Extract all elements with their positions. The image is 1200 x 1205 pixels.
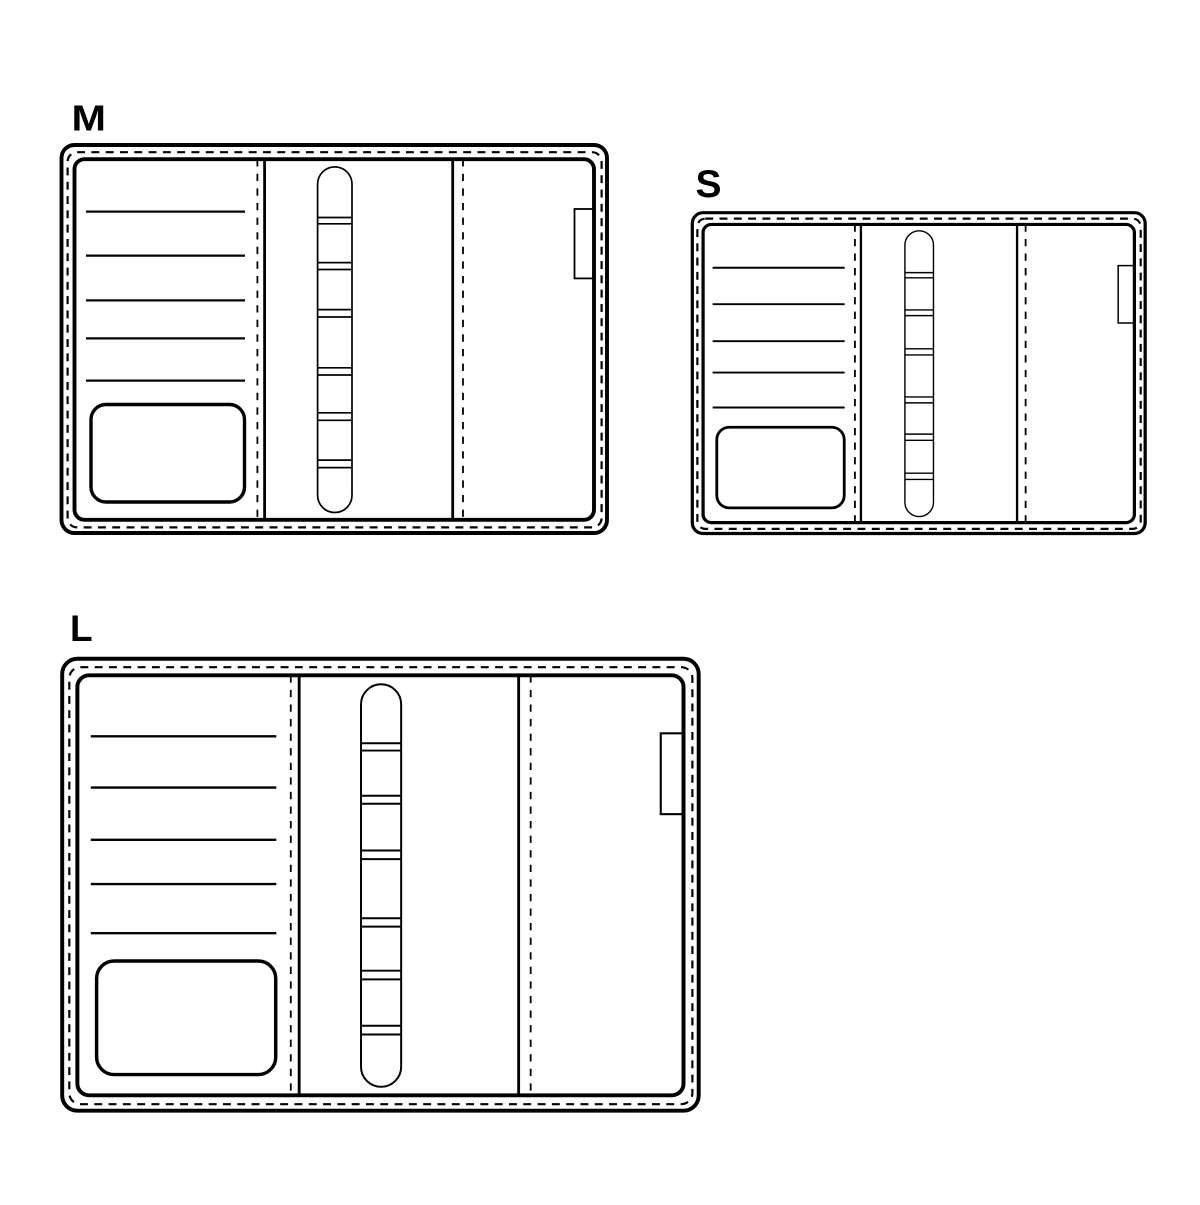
svg-text:M: M — [72, 98, 107, 139]
svg-text:L: L — [70, 608, 93, 649]
svg-text:S: S — [696, 163, 722, 206]
